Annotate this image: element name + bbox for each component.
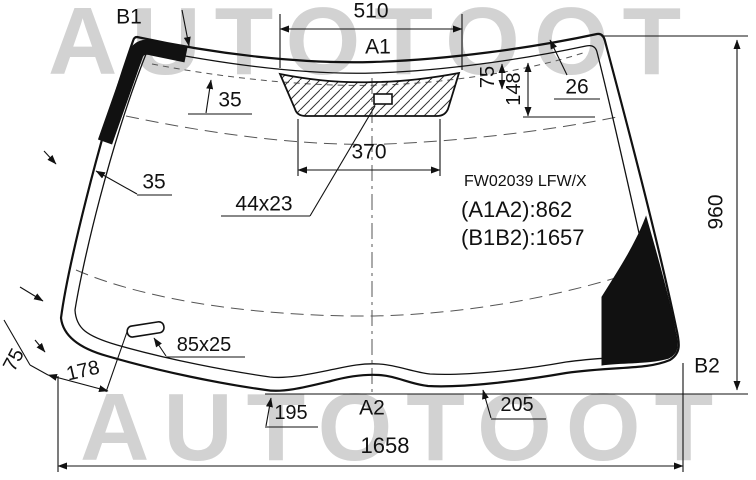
dim-75-label: 75 bbox=[478, 66, 498, 88]
dim-35-top-label: 35 bbox=[218, 90, 241, 111]
part-code: FW02039 LFW/X bbox=[464, 174, 587, 190]
dim-1658-label: 1658 bbox=[361, 435, 410, 457]
dim-a1a2: (A1A2):862 bbox=[461, 199, 572, 221]
dim-148-label: 148 bbox=[504, 72, 524, 105]
dim-960-label: 960 bbox=[706, 194, 727, 229]
dim-35-left-label: 35 bbox=[142, 172, 165, 193]
corner-band-bottom-right bbox=[602, 217, 677, 365]
point-a1-label: A1 bbox=[365, 37, 391, 58]
sticker-rect bbox=[126, 321, 164, 338]
dim-370-label: 370 bbox=[351, 142, 386, 163]
dim-85x25-label: 85x25 bbox=[177, 335, 232, 355]
windshield-dimension-diagram: AUTOTOOT AUTOTOOT bbox=[0, 0, 756, 480]
point-a2-label: A2 bbox=[359, 398, 385, 419]
dim-195-label: 195 bbox=[274, 403, 307, 423]
hatched-sensor-area bbox=[280, 73, 459, 116]
dim-510-label: 510 bbox=[353, 1, 388, 22]
dim-205-label: 205 bbox=[500, 395, 533, 415]
dim-44x23-label: 44x23 bbox=[235, 194, 292, 215]
point-b2-label: B2 bbox=[694, 356, 720, 377]
corner-band-top-left bbox=[105, 47, 186, 142]
dim-26-label: 26 bbox=[565, 77, 588, 98]
dim-b1b2: (B1B2):1657 bbox=[461, 227, 585, 249]
point-b1-label: B1 bbox=[116, 7, 142, 28]
sensor-window-rect bbox=[374, 94, 392, 104]
